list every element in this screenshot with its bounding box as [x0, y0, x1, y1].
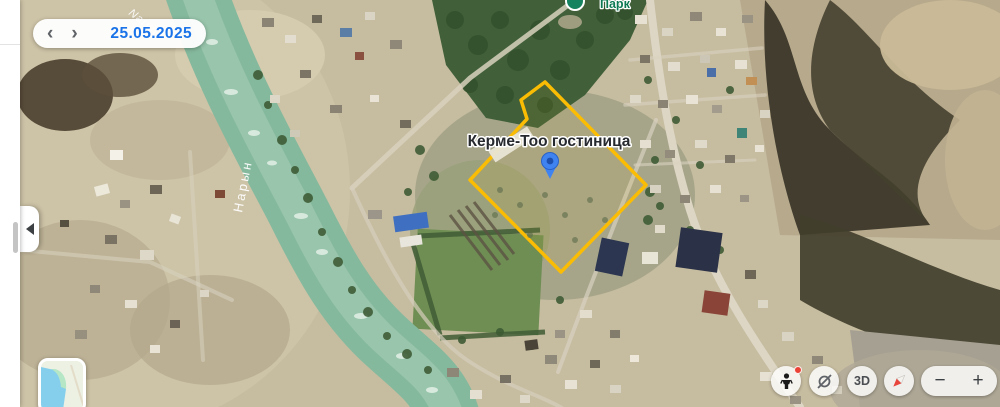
imagery-date-nav: ‹ › 25.05.2025: [33, 19, 206, 48]
compass-button[interactable]: [884, 366, 914, 396]
pegman-notification-dot: [794, 366, 802, 374]
pegman-button[interactable]: [771, 366, 801, 396]
hotel-label[interactable]: Керме-Тоо гостиница: [468, 133, 631, 150]
park-label[interactable]: Парк: [600, 0, 631, 11]
pegman-icon: [779, 373, 794, 390]
chevron-left-icon: [26, 223, 34, 235]
previous-date-button[interactable]: ‹: [45, 24, 55, 43]
minimap-toggle[interactable]: [38, 358, 86, 407]
compass-icon: [889, 371, 909, 391]
satellite-map[interactable]: Naryn Нарын Парк Керме-Тоо гостиница: [0, 0, 1000, 407]
my-location-icon: [816, 373, 833, 390]
zoom-out-button[interactable]: −: [921, 366, 959, 396]
map-window: Naryn Нарын Парк Керме-Тоо гостиница ‹ ›…: [0, 0, 1000, 407]
minimap-preview: [41, 361, 86, 407]
park-poi-pin[interactable]: [566, 0, 584, 10]
zoom-control: − +: [921, 366, 997, 396]
collapse-panel-button[interactable]: [20, 206, 39, 252]
my-location-button[interactable]: [809, 366, 839, 396]
imagery-date: 25.05.2025: [80, 25, 194, 43]
3d-label: 3D: [854, 374, 870, 388]
side-panel-edge: [0, 0, 20, 407]
side-panel-divider: [0, 44, 20, 45]
zoom-in-button[interactable]: +: [959, 366, 997, 396]
3d-view-button[interactable]: 3D: [847, 366, 877, 396]
side-panel-scrollbar[interactable]: [13, 222, 18, 253]
next-date-button[interactable]: ›: [69, 24, 79, 43]
